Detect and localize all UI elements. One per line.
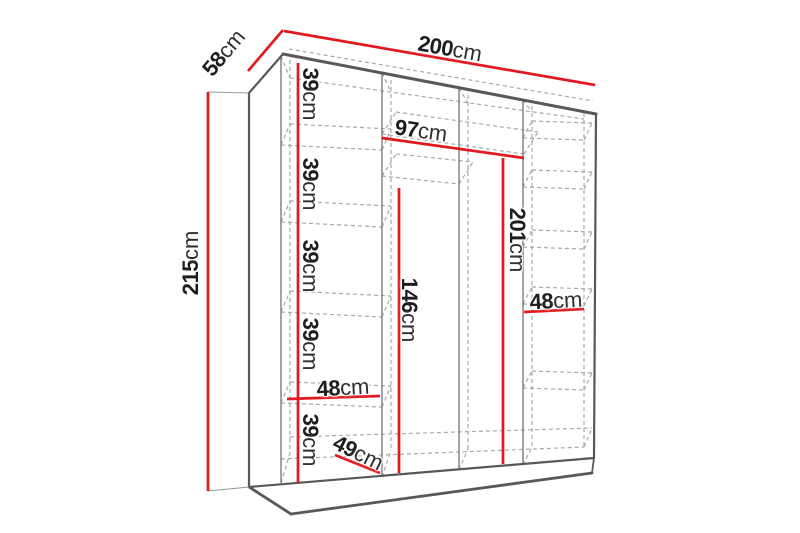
- dim-left-column-width-unit: cm: [339, 374, 370, 401]
- extension-lines: [208, 92, 249, 491]
- dim-middle-width-unit: cm: [416, 118, 449, 147]
- plinth-right-edge: [592, 458, 594, 473]
- dim-shelf-gap-1-value: 39: [298, 68, 323, 91]
- dim-shelf-gap-4-unit: cm: [298, 341, 323, 370]
- dim-height-label: 215cm: [180, 231, 202, 296]
- wardrobe-dimension-diagram: 58cm 200cm 215cm 39cm 39cm 39cm 39cm 39c…: [0, 0, 800, 533]
- right-edge: [594, 114, 596, 458]
- dim-shelf-gap-1-label: 39cm: [299, 68, 321, 121]
- dim-shelf-gap-3-unit: cm: [298, 263, 323, 292]
- dim-right-column-width-label: 48cm: [529, 289, 583, 314]
- dim-shelf-gap-2-value: 39: [298, 158, 323, 181]
- dim-right-column-width-unit: cm: [552, 287, 583, 314]
- dim-shelf-gap-1-unit: cm: [298, 91, 323, 120]
- dim-left-hanging-height-value: 146: [397, 278, 422, 313]
- dim-shelf-gap-3-value: 39: [298, 240, 323, 263]
- top-edge: [283, 54, 596, 114]
- dimension-lines: [208, 30, 595, 491]
- dim-right-column-width-value: 48: [529, 288, 554, 314]
- dim-shelf-gap-4-label: 39cm: [299, 318, 321, 371]
- interior-dashed-lines: [281, 49, 593, 483]
- dim-shelf-gap-5-label: 39cm: [299, 414, 321, 467]
- dim-right-hanging-height-label: 201cm: [506, 208, 528, 273]
- wardrobe-line-drawing: [0, 0, 800, 533]
- dim-left-column-width-label: 48cm: [316, 376, 370, 401]
- dim-width-unit: cm: [451, 37, 484, 67]
- plinth-left-slant: [249, 487, 291, 514]
- dim-shelf-gap-2-label: 39cm: [299, 158, 321, 211]
- dim-shelf-gap-3-label: 39cm: [299, 240, 321, 293]
- dim-left-column-width-value: 48: [316, 375, 341, 401]
- dim-shelf-gap-4-value: 39: [298, 318, 323, 341]
- depth-dimension-line: [248, 30, 283, 71]
- dim-left-hanging-height-label: 146cm: [398, 278, 420, 343]
- dim-right-hanging-height-unit: cm: [505, 243, 530, 272]
- dim-shelf-gap-5-value: 39: [298, 414, 323, 437]
- dim-left-hanging-height-unit: cm: [397, 313, 422, 342]
- dim-shelf-gap-2-unit: cm: [298, 181, 323, 210]
- top-left-corner-edge: [249, 54, 283, 93]
- dim-right-hanging-height-value: 201: [505, 208, 530, 243]
- dim-height-unit: cm: [178, 231, 203, 260]
- dim-shelf-gap-5-unit: cm: [298, 437, 323, 466]
- dim-height-value: 215: [178, 260, 203, 295]
